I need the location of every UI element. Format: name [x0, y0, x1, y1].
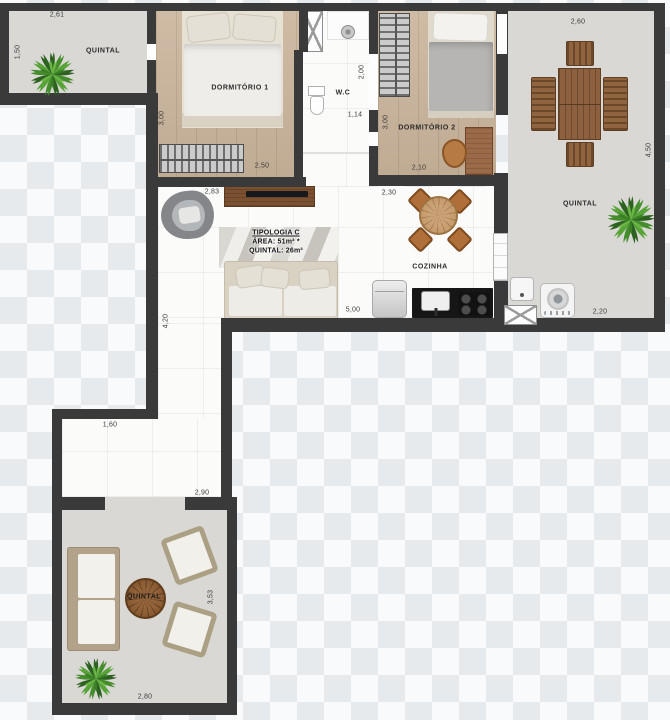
wall-segment	[0, 3, 9, 105]
dim-wc-width: 1,14	[348, 112, 362, 119]
toilet-tank	[308, 86, 325, 96]
throw-pillow	[298, 268, 331, 291]
window-opening	[147, 44, 156, 60]
desk	[465, 127, 493, 175]
wall-segment	[654, 3, 665, 332]
outdoor-dining-table	[558, 68, 601, 140]
wall-segment	[299, 3, 308, 52]
throw-pillow	[260, 266, 290, 289]
wall-segment	[0, 93, 156, 105]
pillow	[186, 11, 232, 43]
kitchen-table	[419, 196, 458, 235]
hall-floor	[62, 419, 221, 497]
plant	[607, 192, 655, 248]
washing-machine	[540, 283, 575, 318]
wall-segment	[369, 110, 378, 132]
dim-hall-top: 1,60	[103, 422, 117, 429]
wc-door-threshold	[303, 152, 369, 154]
clothes-rack	[379, 13, 410, 97]
wall-segment	[0, 3, 665, 11]
dim-cozinha-width: 2,30	[382, 190, 396, 197]
dim-dorm2-width: 2,10	[412, 165, 426, 172]
wall-segment	[369, 175, 497, 186]
outdoor-chair	[531, 77, 556, 131]
garden-sofa-cushion	[78, 600, 115, 644]
dim-hall-bottom: 2,90	[195, 490, 209, 497]
garden-sofa-cushion	[78, 554, 115, 598]
plant	[28, 52, 77, 97]
outdoor-chair	[566, 41, 594, 66]
room-label-quintal-right: QUINTAL	[563, 201, 597, 208]
kitchen-sink	[421, 291, 450, 311]
door-opening	[369, 54, 378, 110]
duvet	[184, 44, 281, 116]
fridge	[372, 280, 407, 318]
plant	[72, 658, 120, 700]
toilet	[310, 96, 324, 115]
dim-living-width: 2,83	[205, 189, 219, 196]
dim-quintal-bottom-width: 2,80	[138, 694, 152, 701]
tipologia-title: TIPOLOGIA C	[252, 230, 299, 237]
door-opening	[105, 497, 185, 510]
outdoor-chair	[566, 142, 594, 167]
laundry-tub	[510, 277, 534, 301]
tipologia-quintal: QUINTAL: 26m²	[249, 248, 303, 255]
outdoor-chair	[603, 77, 628, 131]
wall-segment	[52, 497, 105, 510]
door-opening	[369, 132, 378, 146]
room-label-cozinha: COZINHA	[412, 264, 447, 271]
tv	[246, 191, 308, 197]
room-label-quintal-tl: QUINTAL	[86, 48, 120, 55]
washbasin	[341, 25, 355, 39]
cooktop	[458, 292, 490, 316]
tipologia-area: ÁREA: 51m² *	[252, 239, 300, 246]
dim-wc-height: 2,00	[359, 65, 366, 79]
dim-quintal-right-bottom: 2,20	[593, 309, 607, 316]
pillow	[433, 12, 489, 42]
dim-dorm2-height: 3,00	[383, 115, 390, 129]
armchair-pillow	[178, 206, 201, 225]
wall-segment	[222, 318, 665, 332]
wall-segment	[146, 177, 306, 187]
window-opening	[497, 14, 507, 54]
apartment-floor-plan: 2,61 1,50 QUINTAL DORMITÓRIO 1 3,00 2,50…	[0, 0, 670, 720]
wall-segment	[494, 173, 508, 233]
wall-segment	[221, 318, 232, 500]
wall-segment	[52, 703, 237, 715]
kitchen-tall-cabinet	[493, 233, 508, 281]
wall-segment	[294, 50, 303, 177]
dim-quintal-tl-width: 2,61	[50, 12, 64, 19]
dim-dorm1-width: 2,50	[255, 163, 269, 170]
duvet	[429, 42, 493, 111]
room-label-dorm2: DORMITÓRIO 2	[398, 125, 455, 132]
dim-quintal-tl-height: 1,50	[15, 45, 22, 59]
dim-quintal-bottom-height: 3,53	[208, 590, 215, 604]
dim-quintal-right-height: 4,50	[646, 143, 653, 157]
room-label-dorm1: DORMITÓRIO 1	[211, 85, 268, 92]
clothes-rack	[159, 144, 244, 173]
room-label-wc: W.C	[336, 90, 351, 97]
dim-cozinha-bottom: 5,00	[346, 307, 360, 314]
dim-living-height: 4,20	[163, 314, 170, 328]
wc-hall-floor	[301, 154, 369, 187]
dim-quintal-right-width: 2,60	[571, 19, 585, 26]
sofa-cushion	[229, 286, 282, 316]
utility-sink	[504, 305, 537, 325]
room-label-quintal-bottom: QUINTAL	[127, 594, 161, 601]
wall-segment	[52, 409, 62, 715]
pillow	[232, 13, 277, 43]
wall-segment	[227, 497, 237, 715]
dim-dorm1-height: 3,00	[159, 111, 166, 125]
wall-segment	[369, 3, 378, 54]
sofa-cushion	[284, 286, 336, 316]
wall-segment	[52, 409, 157, 419]
wall-segment	[146, 93, 158, 419]
